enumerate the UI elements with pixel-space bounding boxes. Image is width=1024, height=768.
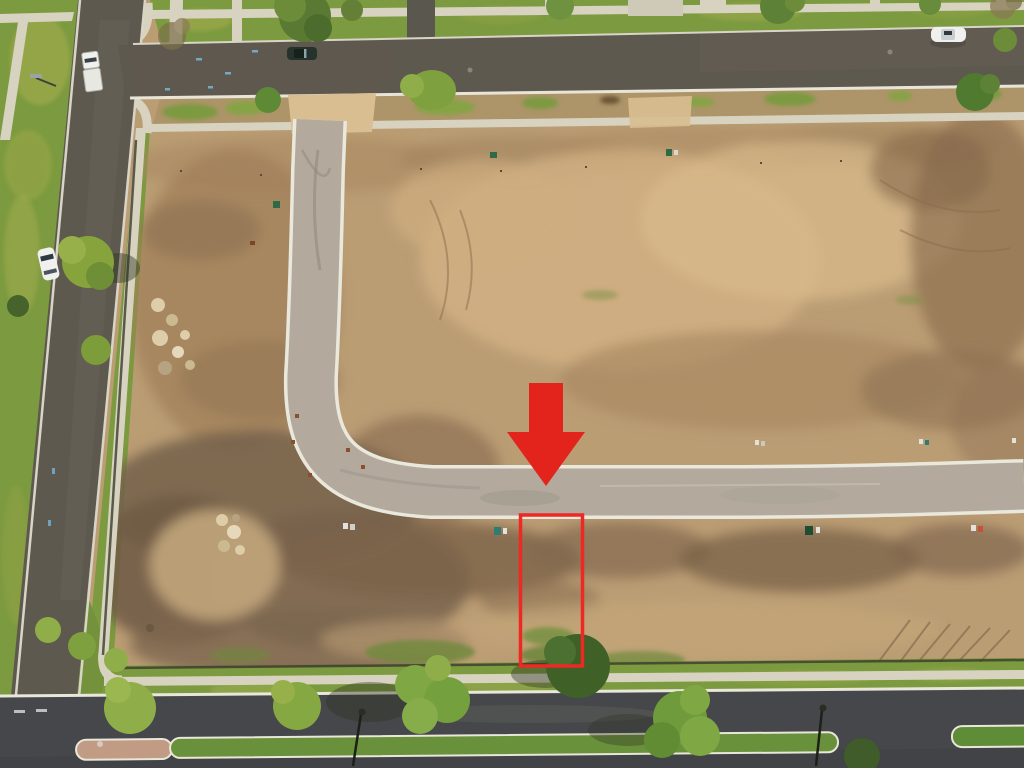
median-brick-nose	[76, 739, 172, 760]
dark-parked-car	[287, 47, 317, 60]
white-parked-sedan	[930, 27, 966, 48]
median-island	[952, 725, 1024, 747]
aerial-photo	[0, 0, 1024, 768]
